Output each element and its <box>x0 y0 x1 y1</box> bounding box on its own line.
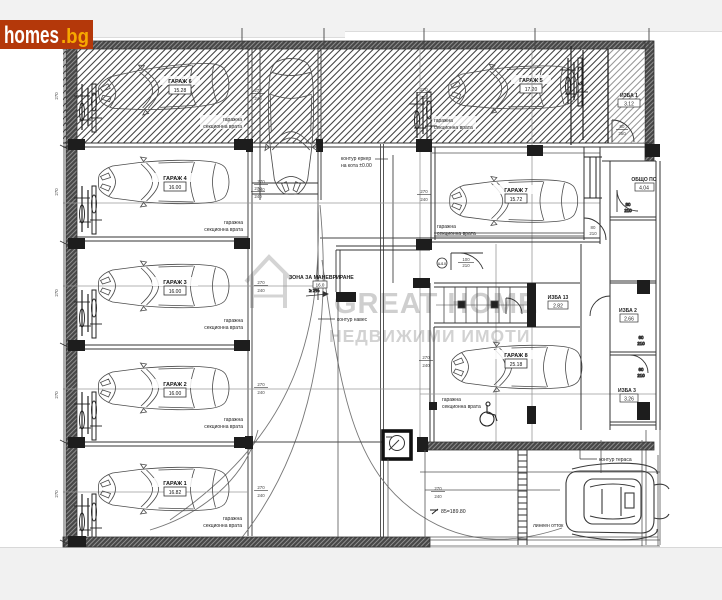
svg-text:GREAT HOME: GREAT HOME <box>334 288 538 320</box>
svg-text:16.00: 16.00 <box>169 289 182 295</box>
svg-text:Ш10: Ш10 <box>438 261 447 266</box>
svg-text:15.28: 15.28 <box>174 88 187 94</box>
svg-text:3.26: 3.26 <box>624 397 634 403</box>
svg-text:≥ 2%: ≥ 2% <box>309 288 319 293</box>
svg-text:homes: homes <box>4 22 59 49</box>
svg-text:3.12: 3.12 <box>624 102 634 108</box>
svg-text:270: 270 <box>54 289 59 297</box>
svg-text:270: 270 <box>54 92 59 100</box>
svg-text:270: 270 <box>257 382 265 387</box>
svg-text:.bg: .bg <box>61 26 89 48</box>
svg-text:80: 80 <box>626 202 631 207</box>
svg-text:ГАРАЖ 8: ГАРАЖ 8 <box>504 353 527 359</box>
svg-text:ГАРАЖ 7: ГАРАЖ 7 <box>504 188 527 194</box>
svg-text:210: 210 <box>624 208 632 213</box>
svg-text:100: 100 <box>462 257 470 262</box>
svg-text:240: 240 <box>254 194 262 199</box>
svg-text:ГАРАЖ 5: ГАРАЖ 5 <box>519 78 542 84</box>
svg-text:85=189.80: 85=189.80 <box>441 509 466 515</box>
svg-text:240: 240 <box>257 288 265 293</box>
svg-text:секционна врата: секционна врата <box>442 404 481 410</box>
svg-text:60: 60 <box>639 367 644 372</box>
svg-text:секционна врата: секционна врата <box>203 523 242 529</box>
svg-text:16.00: 16.00 <box>169 185 182 191</box>
svg-text:ИЗБА 3: ИЗБА 3 <box>618 388 636 394</box>
svg-text:гаражна: гаражна <box>224 220 243 226</box>
svg-text:240: 240 <box>420 197 428 202</box>
svg-text:270: 270 <box>54 391 59 399</box>
svg-text:80: 80 <box>591 225 596 230</box>
svg-text:240: 240 <box>257 493 265 498</box>
svg-text:270: 270 <box>54 490 59 498</box>
svg-text:4.04: 4.04 <box>639 186 649 192</box>
svg-text:270: 270 <box>257 485 265 490</box>
svg-text:270: 270 <box>254 88 262 93</box>
svg-text:250: 250 <box>618 131 626 136</box>
svg-text:на кота ±0.00: на кота ±0.00 <box>341 163 372 169</box>
svg-text:210: 210 <box>589 231 597 236</box>
svg-text:гаражна: гаражна <box>223 117 242 123</box>
svg-text:секционна врата: секционна врата <box>434 125 473 131</box>
svg-text:контур тераса: контур тераса <box>599 457 632 463</box>
svg-text:2.66: 2.66 <box>624 317 634 323</box>
svg-text:гаражна: гаражна <box>224 417 243 423</box>
svg-text:ГАРАЖ 6: ГАРАЖ 6 <box>168 79 191 85</box>
svg-text:17.20: 17.20 <box>525 87 538 93</box>
svg-text:240: 240 <box>254 96 262 101</box>
svg-text:270: 270 <box>420 87 428 92</box>
svg-text:240: 240 <box>257 390 265 395</box>
svg-text:210: 210 <box>637 341 645 346</box>
svg-text:240: 240 <box>257 187 265 192</box>
svg-text:секционна врата: секционна врата <box>204 325 243 331</box>
svg-text:гаражна: гаражна <box>434 118 453 124</box>
svg-text:16.82: 16.82 <box>169 490 182 496</box>
svg-text:60: 60 <box>639 335 644 340</box>
svg-text:270: 270 <box>257 179 265 184</box>
svg-text:секционна врата: секционна врата <box>203 124 242 130</box>
svg-text:16.00: 16.00 <box>169 391 182 397</box>
svg-text:270: 270 <box>420 189 428 194</box>
svg-text:210: 210 <box>462 263 470 268</box>
svg-text:240: 240 <box>420 95 428 100</box>
svg-text:270: 270 <box>434 486 442 491</box>
svg-text:контур еркер: контур еркер <box>341 156 371 162</box>
svg-text:ГАРАЖ 4: ГАРАЖ 4 <box>163 176 187 182</box>
svg-text:240: 240 <box>422 363 430 368</box>
svg-text:секционна врата: секционна врата <box>204 424 243 430</box>
svg-text:гаражна: гаражна <box>442 397 461 403</box>
svg-text:секционна врата: секционна врата <box>204 227 243 233</box>
svg-text:80: 80 <box>620 124 625 129</box>
svg-text:270: 270 <box>422 355 430 360</box>
svg-text:линеен отток: линеен отток <box>533 523 564 529</box>
svg-text:16.0: 16.0 <box>316 283 325 288</box>
svg-text:секционна врата: секционна врата <box>437 231 476 237</box>
svg-text:ЗОНА ЗА МАНЕВРИРАНЕ: ЗОНА ЗА МАНЕВРИРАНЕ <box>289 275 354 281</box>
svg-text:2.82: 2.82 <box>553 304 563 310</box>
svg-text:контур навес: контур навес <box>337 317 368 323</box>
svg-text:25.18: 25.18 <box>510 362 523 368</box>
svg-text:гаражна: гаражна <box>223 516 242 522</box>
svg-text:ИЗБА 1: ИЗБА 1 <box>620 93 638 99</box>
svg-text:240: 240 <box>434 494 442 499</box>
svg-text:ИЗБА 2: ИЗБА 2 <box>619 308 637 314</box>
svg-text:гаражна: гаражна <box>224 318 243 324</box>
svg-text:ОБЩО ПО: ОБЩО ПО <box>631 177 656 183</box>
svg-text:ГАРАЖ 2: ГАРАЖ 2 <box>163 382 186 388</box>
svg-text:210: 210 <box>637 373 645 378</box>
svg-text:ГАРАЖ 1: ГАРАЖ 1 <box>163 481 186 487</box>
svg-text:гаражна: гаражна <box>437 224 456 230</box>
svg-text:270: 270 <box>257 280 265 285</box>
svg-text:ИЗБА 13: ИЗБА 13 <box>548 295 569 301</box>
svg-text:ГАРАЖ 3: ГАРАЖ 3 <box>163 280 186 286</box>
svg-text:15.72: 15.72 <box>510 197 523 203</box>
svg-text:270: 270 <box>54 188 59 196</box>
